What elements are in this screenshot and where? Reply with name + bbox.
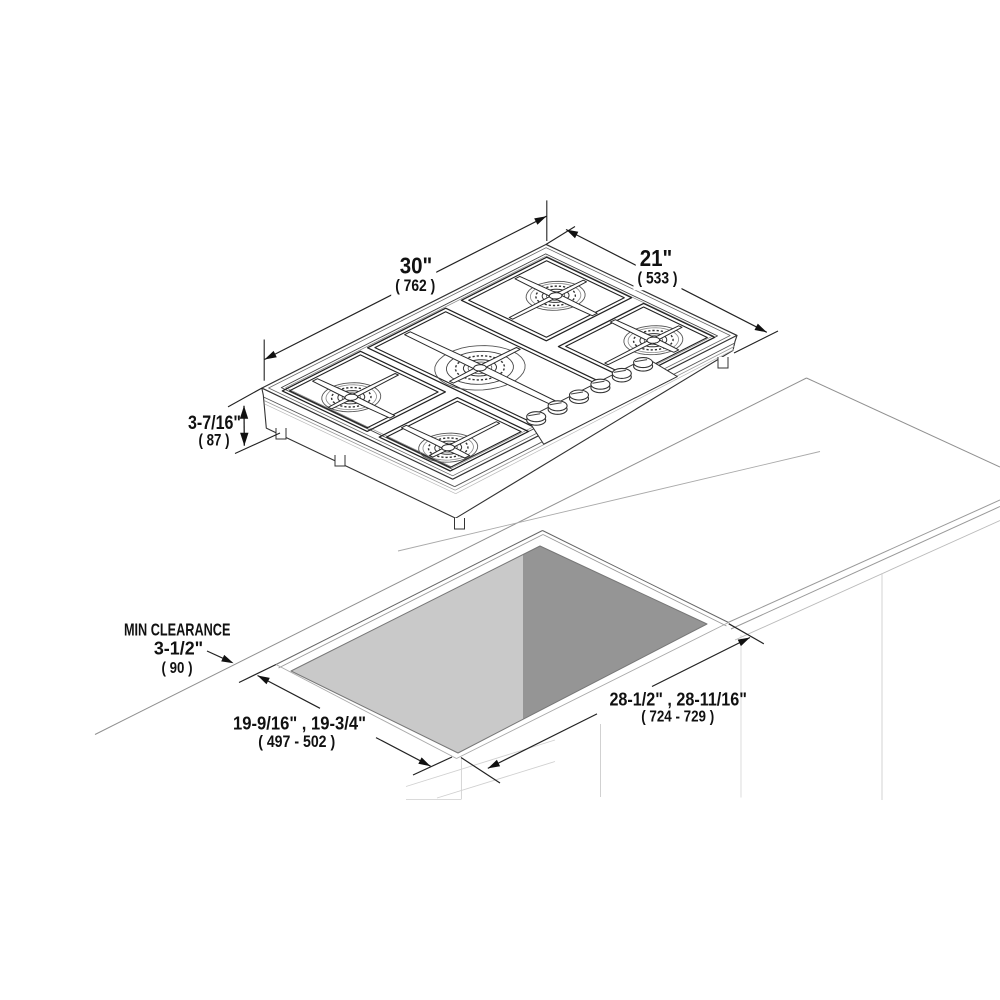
svg-text:( 762 ): ( 762 ): [395, 276, 435, 295]
svg-text:28-1/2" , 28-11/16": 28-1/2" , 28-11/16": [609, 688, 747, 709]
svg-text:( 90 ): ( 90 ): [162, 660, 193, 677]
svg-text:3-1/2": 3-1/2": [154, 639, 203, 659]
svg-text:( 533 ): ( 533 ): [638, 269, 678, 288]
svg-text:( 87 ): ( 87 ): [199, 432, 230, 450]
svg-text:19-9/16" , 19-3/4": 19-9/16" , 19-3/4": [233, 712, 366, 733]
svg-text:( 497 - 502 ): ( 497 - 502 ): [258, 733, 335, 751]
svg-text:( 724 - 729 ): ( 724 - 729 ): [641, 709, 714, 726]
svg-text:MIN CLEARANCE: MIN CLEARANCE: [124, 620, 231, 640]
